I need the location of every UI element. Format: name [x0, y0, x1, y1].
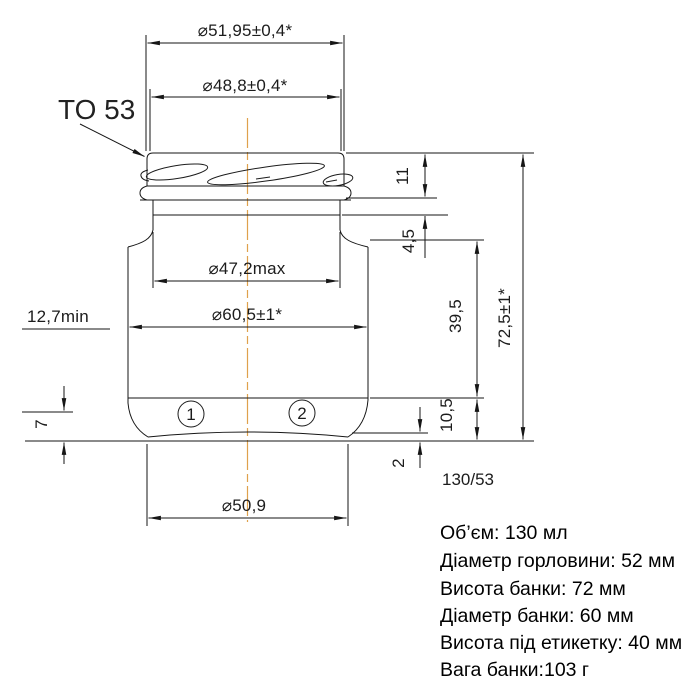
- dim-label-finish-height: 11: [393, 167, 412, 185]
- spec-block: Об’єм: 130 мл Діаметр горловини: 52 мм В…: [440, 522, 682, 681]
- dim-label-total-height: 72,5±1*: [495, 288, 514, 348]
- mold-marks: 1 2: [178, 400, 315, 427]
- dim-label-neck-max: ⌀47,2max: [208, 259, 285, 278]
- dim-label-neck-height: 4,5: [399, 229, 418, 253]
- spec-jar-weight: Вага банки:103 г: [440, 659, 589, 681]
- thread-turn-1: [145, 161, 208, 184]
- rim-top: [147, 153, 344, 186]
- heel-left: [128, 403, 148, 437]
- dim-label-body-diameter: ⌀60,5±1*: [212, 305, 283, 324]
- thread-turn-3: [322, 172, 353, 188]
- shoulder-right: [340, 230, 368, 247]
- jar-technical-drawing: 1 2: [0, 0, 700, 700]
- screw-threads: [145, 159, 353, 189]
- spec-volume: Об’єм: 130 мл: [440, 522, 568, 544]
- thread-dash-2: [326, 180, 337, 182]
- bead-left-bulge: [140, 186, 147, 200]
- dim-label-pushup-height: 2: [389, 458, 408, 468]
- thread-turn-2: [207, 159, 326, 189]
- spec-jar-height: Висота банки: 72 мм: [440, 578, 626, 600]
- dim-label-label-height: 39,5: [446, 299, 465, 333]
- shoulder-left: [128, 230, 153, 247]
- mold-mark-2-label: 2: [297, 404, 306, 423]
- spec-jar-diameter: Діаметр банки: 60 мм: [440, 605, 634, 627]
- dim-label-label-min: 12,7min: [27, 307, 89, 326]
- drawing-code: 130/53: [442, 470, 494, 489]
- dim-label-bottom-diameter: ⌀50,9: [222, 496, 266, 515]
- dim-label-top-outer: ⌀51,95±0,4*: [198, 21, 293, 40]
- technical-drawing-page: 1 2: [0, 0, 700, 700]
- dim-label-heel-height: 10,5: [437, 398, 456, 432]
- dim-label-top-thread: ⌀48,8±0,4*: [203, 76, 288, 95]
- thread-dash-1: [256, 177, 270, 179]
- heel-right: [348, 400, 368, 437]
- finish-type-label: TO 53: [58, 94, 135, 125]
- spec-label-height: Висота під етикетку: 40 мм: [440, 632, 682, 654]
- dim-label-base-height: 7: [32, 419, 51, 429]
- thread-exit-left: [141, 170, 149, 181]
- spec-neck-diameter: Діаметр горловини: 52 мм: [440, 550, 675, 572]
- mold-mark-1-label: 1: [186, 405, 195, 424]
- finish-leader-line: [80, 124, 145, 157]
